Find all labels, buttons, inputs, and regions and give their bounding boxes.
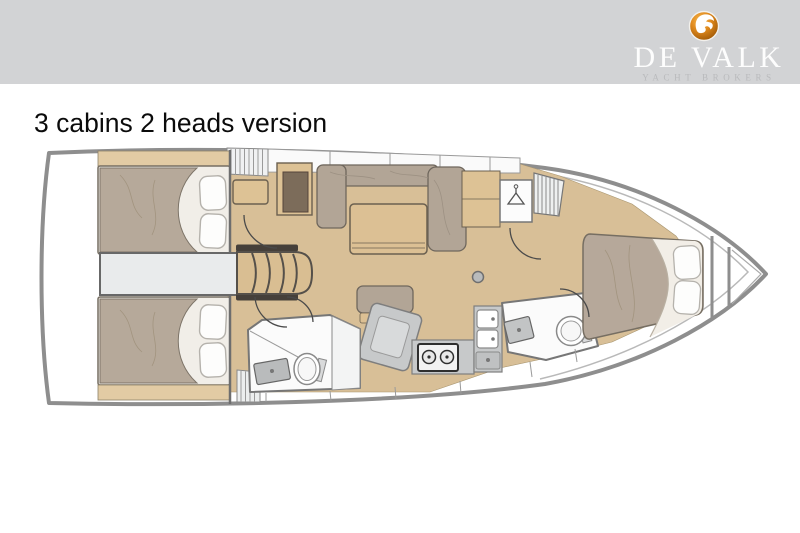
mast-post: [473, 272, 484, 283]
shower-stall: [332, 316, 360, 390]
shelf: [98, 151, 230, 166]
brand-tagline: YACHT BROKERS: [642, 73, 775, 83]
companionway-steps: [236, 245, 312, 301]
chart-table-top: [283, 172, 308, 212]
pillow: [199, 213, 227, 248]
aft-cabin-port: [98, 150, 230, 254]
screenshot-root: DE VALK YACHT BROKERS 3 cabins 2 heads v…: [0, 0, 800, 533]
hanging-locker: [500, 180, 532, 222]
engine-compartment: [100, 253, 237, 295]
pillow: [673, 280, 701, 315]
floorplan: [42, 148, 767, 404]
page-title: 3 cabins 2 heads version: [34, 108, 327, 138]
pillow: [199, 304, 227, 339]
floorplan-image: DE VALK YACHT BROKERS 3 cabins 2 heads v…: [0, 0, 800, 533]
header-bar: DE VALK YACHT BROKERS: [0, 0, 800, 84]
settee-right-arm: [428, 167, 466, 251]
saloon-table: [350, 204, 427, 254]
sink-bowl: [477, 310, 498, 328]
wardrobes: [500, 173, 564, 222]
brand-wordmark: DE VALK: [634, 41, 785, 74]
pillow: [199, 342, 227, 377]
pillow: [673, 245, 701, 280]
sink-bowl: [477, 330, 498, 348]
aft-cabin-starboard: [98, 295, 230, 404]
falcon-logo-icon: [690, 12, 719, 41]
shelf: [98, 385, 230, 400]
aft-head: [248, 315, 360, 392]
pillow: [199, 175, 227, 210]
companionway-hatch: [227, 148, 268, 176]
nav-seat: [233, 180, 268, 204]
